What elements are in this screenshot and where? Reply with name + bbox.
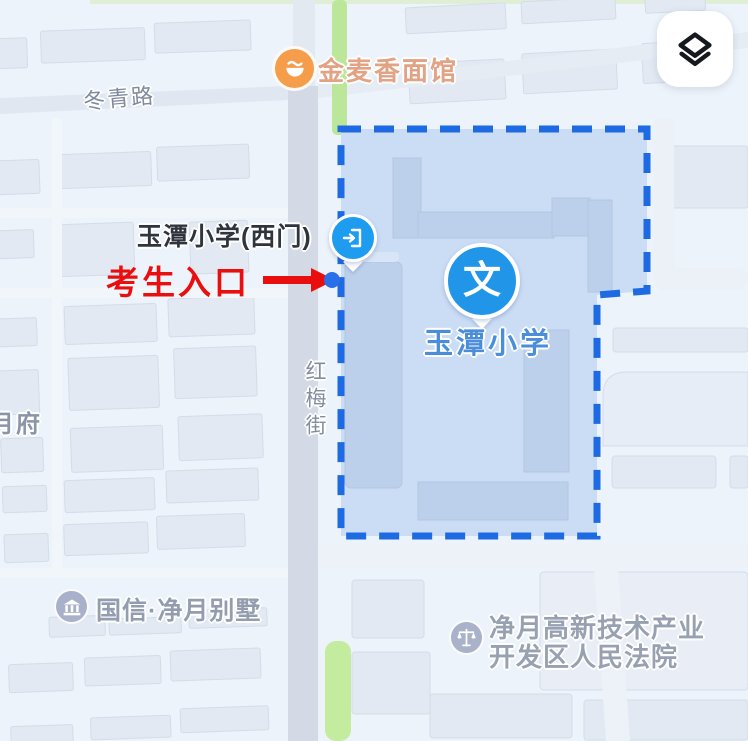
scales-icon[interactable] bbox=[449, 620, 484, 655]
poi-label-villa[interactable]: 国信·净月别墅 bbox=[96, 591, 261, 627]
poi-label-court[interactable]: 净月高新技术产业 开发区人民法院 bbox=[489, 614, 705, 672]
road-label-dongqing: 冬青路 bbox=[82, 78, 157, 116]
building-icon[interactable] bbox=[54, 589, 89, 624]
school-pin[interactable]: 文 bbox=[444, 243, 520, 319]
poi-label-school-west-gate[interactable]: 玉潭小学(西门) bbox=[137, 217, 312, 253]
map-view: 冬青路 红梅街 月府 金麦香面馆 玉潭小学(西门) 考生入口 文 bbox=[0, 0, 748, 741]
layers-button[interactable] bbox=[657, 11, 733, 87]
road-label-hongmei: 红梅街 bbox=[299, 360, 329, 441]
annotation-examinee-entrance: 考生入口 bbox=[106, 256, 250, 304]
school-gate-pin[interactable] bbox=[329, 214, 377, 262]
poi-label-school[interactable]: 玉潭小学 bbox=[424, 320, 552, 362]
education-wen-icon: 文 bbox=[444, 243, 520, 319]
entrance-door-icon bbox=[341, 226, 365, 250]
restaurant-icon[interactable] bbox=[272, 46, 317, 91]
poi-label-noodle-shop[interactable]: 金麦香面馆 bbox=[318, 51, 458, 88]
greenway-bottom bbox=[325, 641, 351, 741]
layers-icon bbox=[672, 26, 718, 72]
partial-poi-label: 月府 bbox=[0, 404, 42, 439]
entrance-point-dot bbox=[324, 272, 340, 288]
